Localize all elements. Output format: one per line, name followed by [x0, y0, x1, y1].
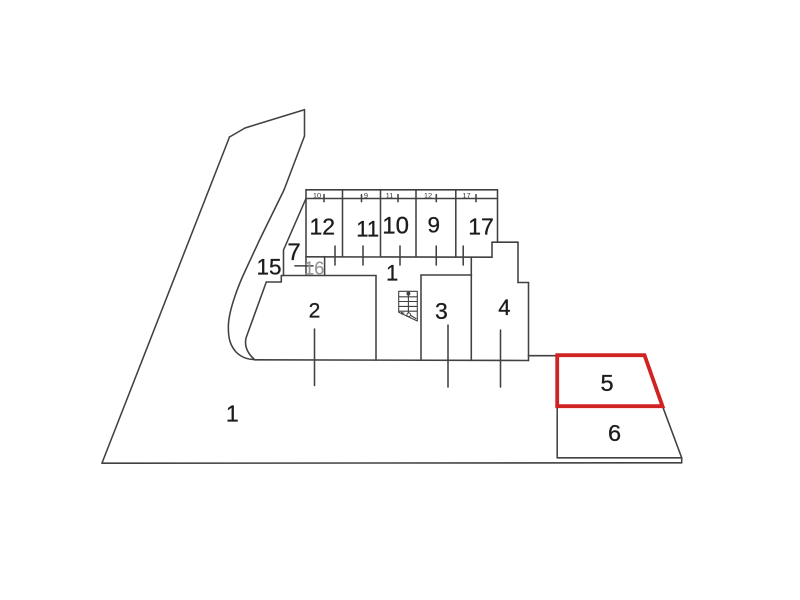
svg-text:3: 3: [435, 298, 448, 324]
svg-text:1: 1: [386, 261, 398, 286]
svg-text:12: 12: [310, 214, 336, 240]
svg-text:12: 12: [424, 191, 432, 200]
svg-text:9: 9: [364, 191, 368, 200]
svg-text:11: 11: [356, 217, 379, 242]
svg-text:10: 10: [382, 213, 409, 240]
svg-text:11: 11: [386, 191, 394, 200]
svg-text:2: 2: [309, 300, 321, 323]
svg-text:9: 9: [427, 213, 440, 238]
svg-text:16: 16: [304, 258, 324, 278]
svg-text:1: 1: [226, 401, 239, 427]
svg-text:15: 15: [256, 254, 281, 279]
svg-text:17: 17: [468, 213, 494, 239]
svg-text:10: 10: [313, 191, 321, 200]
svg-text:7: 7: [287, 239, 300, 266]
svg-text:4: 4: [498, 295, 510, 320]
svg-text:6: 6: [608, 420, 621, 446]
svg-text:17: 17: [462, 191, 470, 200]
svg-text:5: 5: [600, 370, 613, 396]
